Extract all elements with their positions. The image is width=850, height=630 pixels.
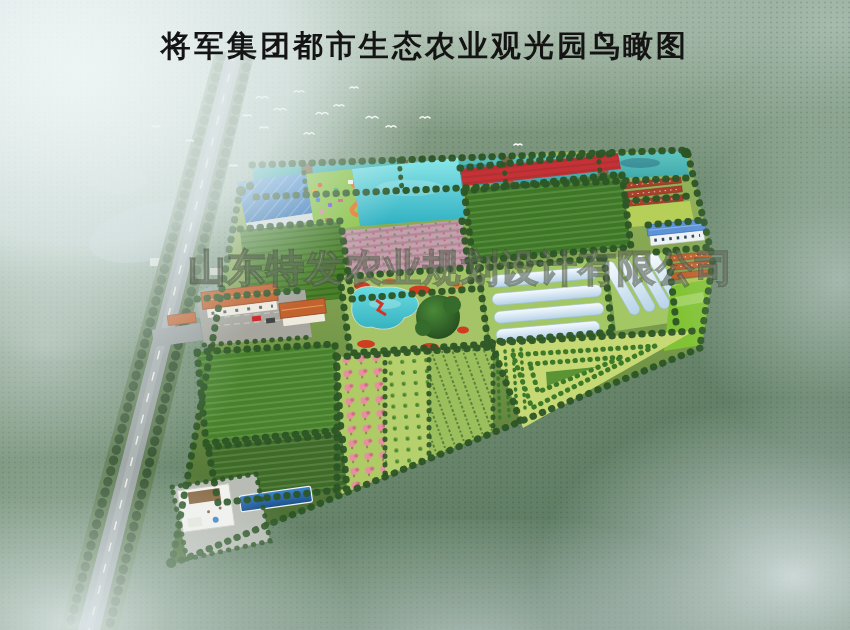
dark-car	[266, 317, 275, 323]
south-building	[177, 484, 234, 533]
plot-crop-fields-west	[197, 344, 347, 503]
aerial-rendering: 山东特发农业规划设计有限公司 将军集团都市生态农业观光园鸟瞰图	[0, 0, 850, 630]
park	[152, 148, 713, 568]
slide-platform	[348, 180, 353, 184]
company-watermark: 山东特发农业规划设计有限公司	[188, 243, 748, 294]
plot-vegetable-triangle	[492, 331, 694, 428]
plot-orchard	[337, 347, 493, 496]
page-title: 将军集团都市生态农业观光园鸟瞰图	[0, 26, 850, 67]
red-car	[252, 315, 261, 321]
park-scene-svg	[0, 0, 850, 630]
